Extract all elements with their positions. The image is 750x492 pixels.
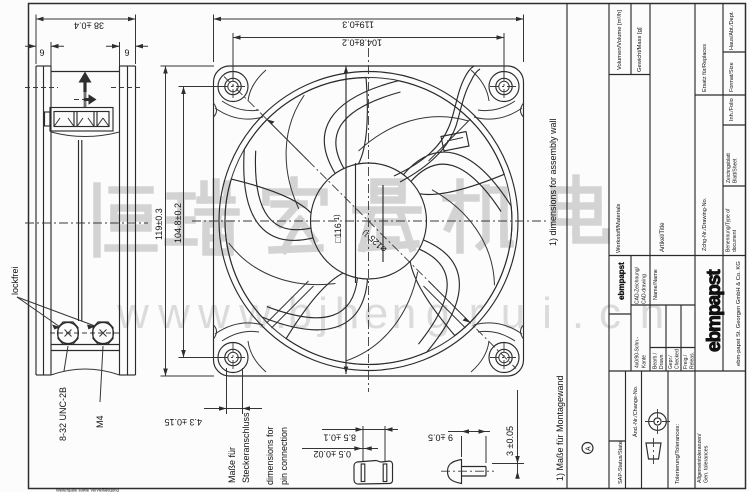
svg-text:ebmpapst: ebmpapst bbox=[704, 269, 725, 352]
svg-text:n: n bbox=[392, 289, 416, 338]
svg-text:104.8±0.2: 104.8±0.2 bbox=[342, 38, 382, 48]
svg-text:Weitergabe sowie Vervielfältig: Weitergabe sowie Vervielfältigung bbox=[56, 488, 119, 492]
svg-text:8-32 UNC-2B: 8-32 UNC-2B bbox=[58, 387, 68, 441]
svg-text:Artikel/Title: Artikel/Title bbox=[660, 222, 666, 252]
svg-text:e: e bbox=[364, 289, 388, 338]
svg-text:.: . bbox=[275, 289, 287, 338]
svg-text:j: j bbox=[316, 289, 328, 338]
svg-text:ebm-papst St. Georgen GmbH & C: ebm-papst St. Georgen GmbH & Co. KG bbox=[736, 261, 742, 366]
svg-text:Gepr./: Gepr./ bbox=[668, 355, 674, 369]
svg-text:119±0.3: 119±0.3 bbox=[342, 20, 374, 30]
svg-text:Tolerierung/Tolerances:: Tolerierung/Tolerances: bbox=[675, 424, 681, 484]
svg-text:Format/Size: Format/Size bbox=[729, 62, 735, 92]
svg-text:4.3 ±0.15: 4.3 ±0.15 bbox=[165, 417, 202, 427]
svg-text:Kante: Kante bbox=[642, 355, 648, 368]
svg-text:Freig./: Freig./ bbox=[683, 354, 689, 369]
svg-text:Gewicht/Mass [g]: Gewicht/Mass [g] bbox=[637, 27, 643, 72]
svg-text:ebmpapst: ebmpapst bbox=[617, 262, 626, 300]
svg-text:w: w bbox=[157, 289, 190, 338]
svg-text:6: 6 bbox=[39, 48, 44, 58]
svg-text:□116 1): □116 1) bbox=[333, 214, 343, 243]
svg-text:Checked: Checked bbox=[675, 349, 681, 369]
svg-text:Volumen/Volume [m³/h]: Volumen/Volume [m³/h] bbox=[617, 10, 623, 70]
svg-text:CAD-drawing: CAD-drawing bbox=[642, 274, 648, 304]
svg-text:CAD-Zeichnung/: CAD-Zeichnung/ bbox=[635, 266, 641, 304]
svg-text:Zchg-Nr./Drawing-No.: Zchg-Nr./Drawing-No. bbox=[702, 197, 708, 251]
svg-text:Werkstoff/Materials: Werkstoff/Materials bbox=[616, 204, 622, 253]
svg-text:Benennung/Type of: Benennung/Type of bbox=[726, 208, 732, 252]
svg-text:Änd.-Nr./Change-No.: Änd.-Nr./Change-No. bbox=[632, 385, 639, 437]
svg-text:1) dimensions for assembly wal: 1) dimensions for assembly wall bbox=[548, 118, 558, 246]
svg-text:119±0.3: 119±0.3 bbox=[154, 208, 164, 240]
svg-text:6: 6 bbox=[124, 48, 129, 58]
svg-text:0.5 ±0.02: 0.5 ±0.02 bbox=[314, 449, 351, 459]
svg-text:1) Maße für Montagewand: 1) Maße für Montagewand bbox=[555, 375, 565, 481]
svg-text:Haus/Abt./Dept.: Haus/Abt./Dept. bbox=[729, 11, 735, 50]
svg-text:Drawn: Drawn bbox=[659, 354, 665, 369]
svg-text:Gen. tolerances: Gen. tolerances bbox=[704, 445, 710, 483]
svg-text:A: A bbox=[586, 446, 593, 451]
svg-text:Name/Name: Name/Name bbox=[653, 269, 659, 300]
svg-text:38 ±0.4: 38 ±0.4 bbox=[74, 21, 104, 31]
svg-text:g: g bbox=[426, 289, 450, 338]
svg-text:lockfrei: lockfrei bbox=[10, 266, 20, 295]
svg-text:3 ±0.05: 3 ±0.05 bbox=[505, 426, 515, 456]
svg-text:Releas.: Releas. bbox=[690, 352, 696, 369]
svg-text:Zeichngsblatt: Zeichngsblatt bbox=[726, 153, 732, 183]
svg-text:M4: M4 bbox=[95, 415, 105, 428]
svg-text:.: . bbox=[572, 289, 584, 338]
svg-text:104.8±0.2: 104.8±0.2 bbox=[173, 203, 183, 243]
svg-text:pin connection: pin connection bbox=[279, 427, 289, 485]
svg-text:Maße für: Maße für bbox=[227, 447, 237, 483]
svg-text:Inh./Folio: Inh./Folio bbox=[729, 98, 735, 121]
svg-text:Steckeranschluss: Steckeranschluss bbox=[241, 412, 251, 483]
svg-text:dimensions for: dimensions for bbox=[265, 426, 275, 485]
svg-text:9 ±0.5: 9 ±0.5 bbox=[428, 433, 453, 443]
svg-text:Ersatz für/Replaces: Ersatz für/Replaces bbox=[702, 44, 708, 92]
svg-text:i: i bbox=[542, 289, 552, 338]
svg-text:Blatt/Sheet: Blatt/Sheet bbox=[733, 158, 739, 183]
svg-text:Bearb./: Bearb./ bbox=[653, 352, 659, 369]
svg-text:4x0/90-Schn.-: 4x0/90-Schn.- bbox=[635, 337, 641, 368]
svg-text:w: w bbox=[116, 289, 149, 338]
svg-text:8.5 ±0.1: 8.5 ±0.1 bbox=[324, 433, 356, 443]
svg-text:Allgemeintoleranzen/: Allgemeintoleranzen/ bbox=[697, 433, 703, 483]
svg-text:u: u bbox=[501, 289, 525, 338]
svg-text:SAP-Status/State: SAP-Status/State bbox=[618, 441, 624, 484]
svg-text:document: document bbox=[732, 229, 738, 252]
